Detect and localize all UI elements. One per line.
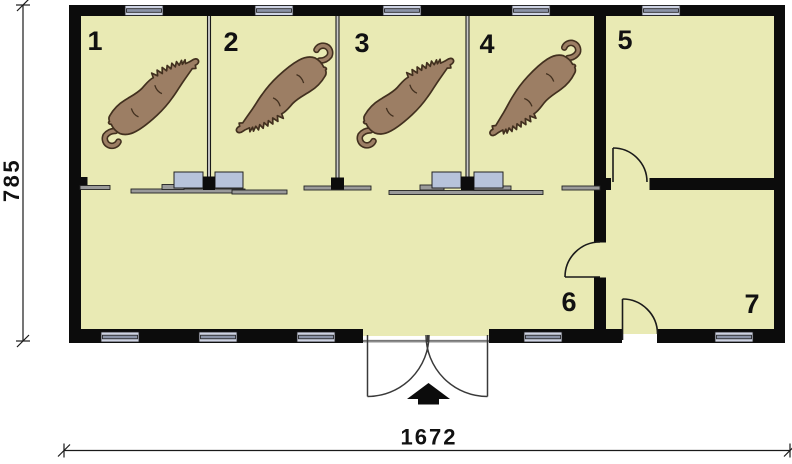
svg-text:1: 1 — [87, 26, 102, 56]
svg-text:2: 2 — [223, 27, 238, 57]
svg-text:1672: 1672 — [401, 425, 458, 450]
svg-text:6: 6 — [561, 287, 576, 317]
svg-text:5: 5 — [617, 25, 632, 55]
svg-text:4: 4 — [479, 29, 494, 59]
svg-text:3: 3 — [354, 28, 369, 58]
svg-text:7: 7 — [744, 289, 759, 319]
svg-text:785: 785 — [0, 158, 24, 202]
